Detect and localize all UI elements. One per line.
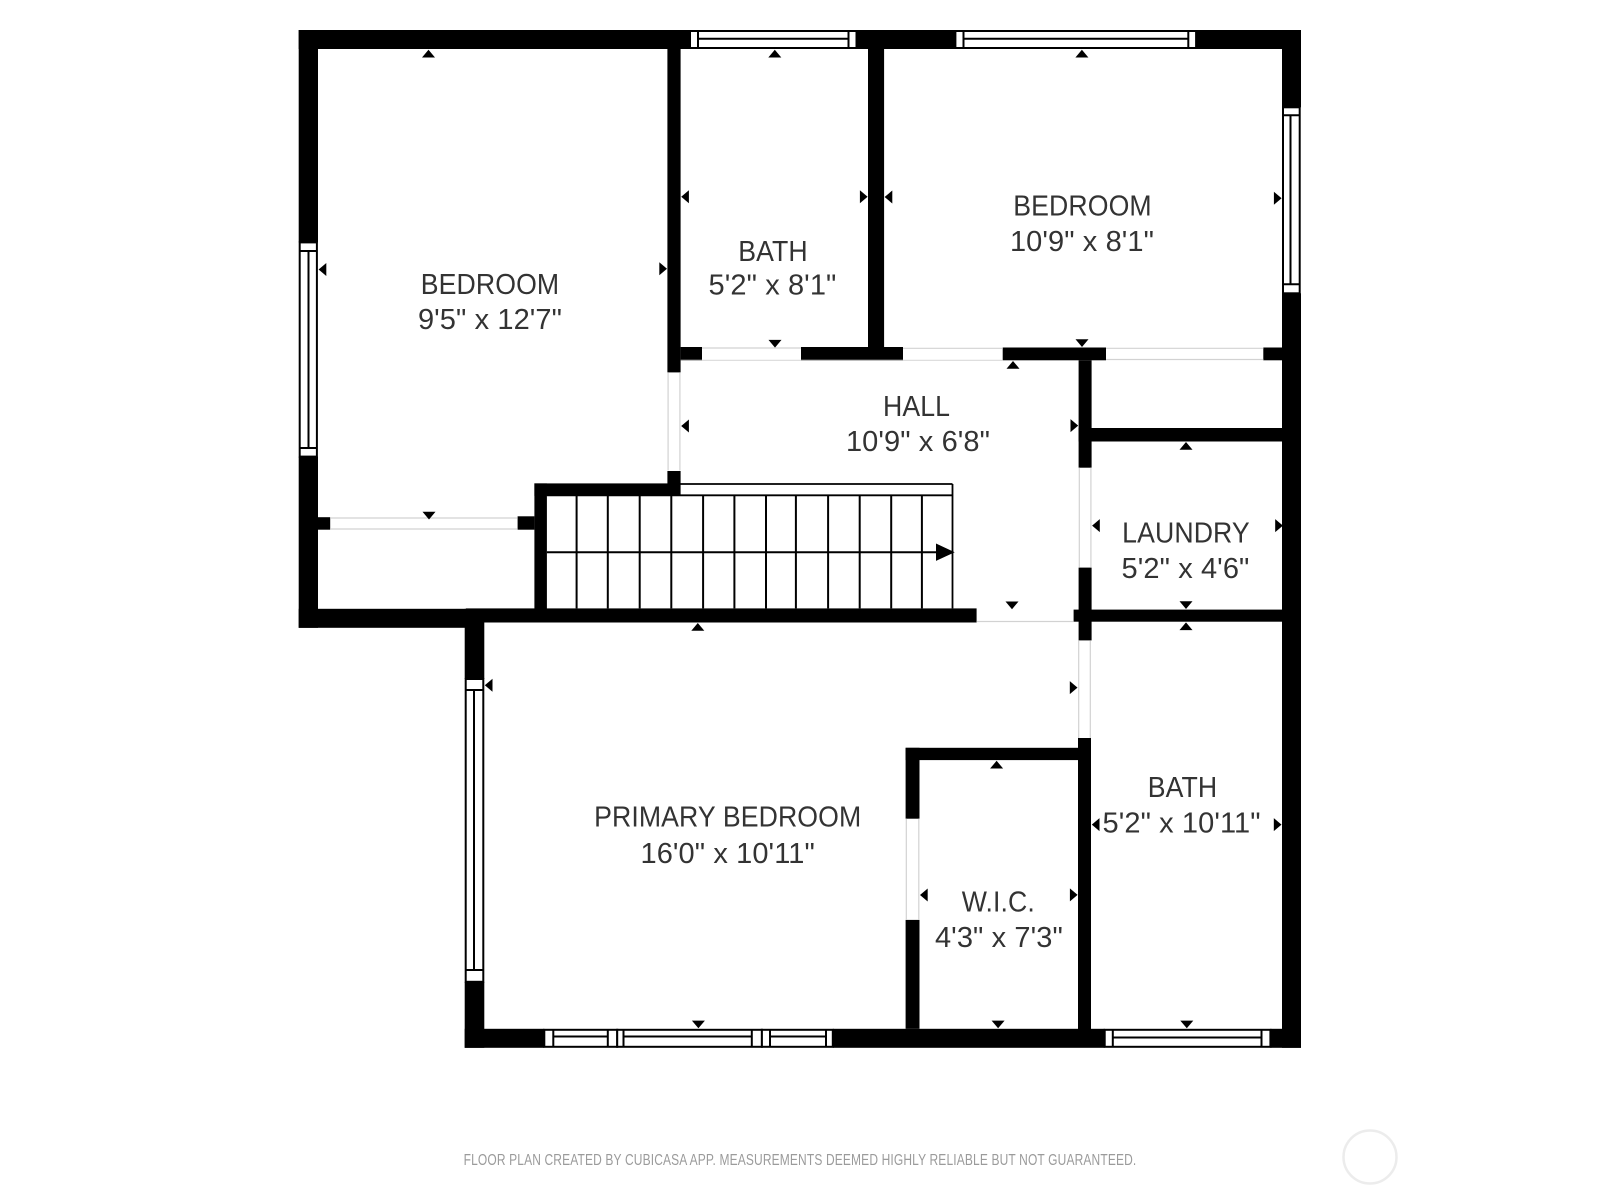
svg-text:BEDROOM: BEDROOM xyxy=(1013,189,1151,221)
svg-text:5'2" x 4'6": 5'2" x 4'6" xyxy=(1122,553,1250,585)
svg-text:HALL: HALL xyxy=(883,390,950,422)
svg-text:PRIMARY BEDROOM: PRIMARY BEDROOM xyxy=(594,800,861,832)
svg-text:W.I.C.: W.I.C. xyxy=(962,885,1035,917)
svg-text:LAUNDRY: LAUNDRY xyxy=(1122,516,1250,548)
svg-text:10'9" x 6'8": 10'9" x 6'8" xyxy=(846,426,990,458)
svg-text:10'9" x 8'1": 10'9" x 8'1" xyxy=(1010,226,1154,258)
svg-text:FLOOR PLAN CREATED BY CUBICASA: FLOOR PLAN CREATED BY CUBICASA APP. MEAS… xyxy=(464,1150,1137,1168)
svg-text:5'2" x 10'11": 5'2" x 10'11" xyxy=(1102,807,1260,839)
svg-text:16'0" x 10'11": 16'0" x 10'11" xyxy=(640,838,814,870)
svg-text:BATH: BATH xyxy=(1148,771,1218,803)
svg-text:9'5" x 12'7": 9'5" x 12'7" xyxy=(418,304,562,336)
svg-text:BATH: BATH xyxy=(738,235,808,267)
svg-text:4'3" x 7'3": 4'3" x 7'3" xyxy=(935,922,1063,954)
svg-text:BEDROOM: BEDROOM xyxy=(421,268,559,300)
svg-text:5'2" x 8'1": 5'2" x 8'1" xyxy=(709,270,837,302)
